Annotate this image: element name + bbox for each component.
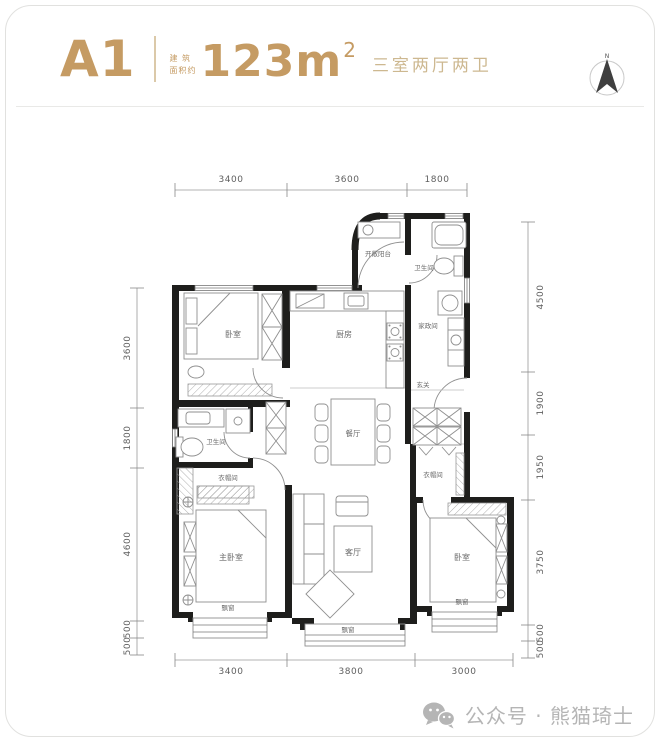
room-label-bathroom-left: 卫生间 bbox=[206, 437, 226, 446]
bay-window-label-right: 飘窗 bbox=[456, 597, 469, 606]
room-label-foyer: 玄关 bbox=[417, 380, 431, 389]
room-label-living-room: 客厅 bbox=[345, 547, 361, 557]
dim-bottom-1: 3400 bbox=[219, 667, 244, 677]
room-label-closet-left: 衣帽间 bbox=[218, 473, 238, 482]
furniture-bathroom-left bbox=[176, 409, 250, 457]
dim-bottom-3: 3000 bbox=[452, 667, 477, 677]
dim-left-1: 3600 bbox=[123, 336, 133, 361]
north-compass: N bbox=[590, 53, 624, 95]
dim-top-2: 3600 bbox=[335, 175, 360, 185]
dimension-right: 4500 1900 1950 3750 500 500 bbox=[521, 222, 546, 658]
room-label-bedroom-top-left: 卧室 bbox=[225, 329, 241, 339]
watermark-text: 公众号 · 熊猫琦士 bbox=[465, 700, 634, 729]
watermark: 公众号 · 熊猫琦士 bbox=[422, 700, 634, 729]
dim-left-4: 500 bbox=[123, 620, 133, 639]
dim-right-5: 500 bbox=[536, 624, 546, 643]
bay-window-label-middle: 飘窗 bbox=[342, 625, 355, 634]
wechat-icon bbox=[422, 701, 456, 729]
room-label-master-bedroom: 主卧室 bbox=[219, 552, 243, 562]
floor-plan-page: A1 建 筑 面积约 123m 2 三室两厅两卫 N bbox=[0, 0, 660, 742]
floor-plan-svg: N bbox=[0, 0, 660, 742]
room-label-closet-right: 衣帽间 bbox=[423, 470, 443, 479]
bay-window-label-left: 飘窗 bbox=[222, 603, 235, 612]
dimension-top: 3400 3600 1800 bbox=[175, 175, 467, 197]
furniture-kitchen bbox=[290, 291, 404, 388]
north-label: N bbox=[605, 53, 610, 60]
dim-bottom-2: 3800 bbox=[339, 667, 364, 677]
furniture-utility-room bbox=[438, 291, 464, 366]
dimension-bottom: 3400 3800 3000 bbox=[175, 653, 513, 677]
dim-left-5: 500 bbox=[123, 637, 133, 656]
furniture-balcony bbox=[358, 222, 400, 238]
dim-top-1: 3400 bbox=[219, 175, 244, 185]
dim-left-2: 1800 bbox=[123, 426, 133, 451]
dimension-left: 3600 1800 4600 500 500 bbox=[123, 288, 144, 655]
room-label-bathroom-top: 卫生间 bbox=[414, 263, 434, 272]
room-label-bedroom-bottom-right: 卧室 bbox=[454, 552, 470, 562]
furniture-bedroom-top-left bbox=[184, 293, 282, 396]
dim-right-6: 500 bbox=[536, 640, 546, 659]
room-label-dining: 餐厅 bbox=[346, 429, 361, 438]
furniture-corridor-cabinet bbox=[266, 402, 286, 454]
dim-right-4: 3750 bbox=[536, 550, 546, 575]
room-label-kitchen: 厨房 bbox=[336, 329, 352, 339]
dim-right-3: 1950 bbox=[536, 455, 546, 480]
dim-right-1: 4500 bbox=[536, 285, 546, 310]
room-label-utility-room: 家政间 bbox=[418, 321, 438, 330]
dim-top-3: 1800 bbox=[425, 175, 450, 185]
dim-right-2: 1900 bbox=[536, 391, 546, 416]
furniture-bathroom-top bbox=[432, 222, 466, 276]
furniture-foyer-closet-right bbox=[413, 408, 464, 495]
room-label-open-balcony: 开敞阳台 bbox=[365, 249, 391, 258]
dim-left-3: 4600 bbox=[123, 532, 133, 557]
